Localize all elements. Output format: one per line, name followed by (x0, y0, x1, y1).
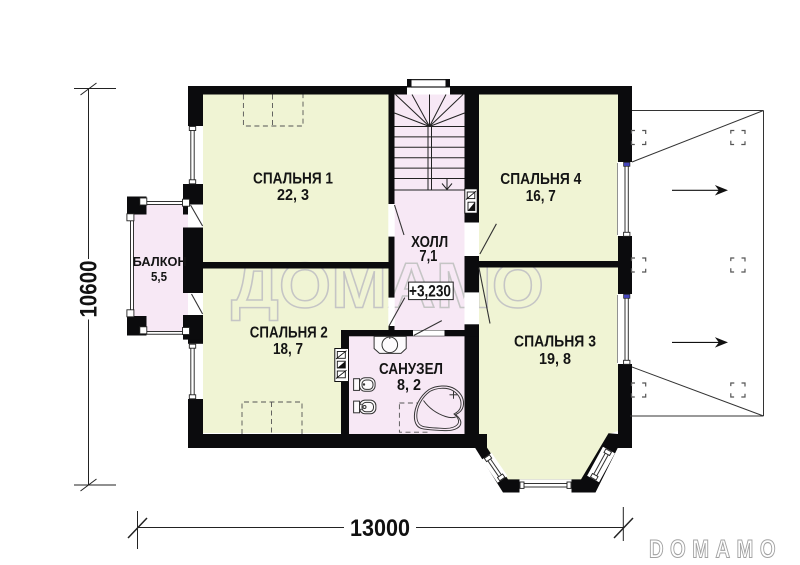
svg-text:БАЛКОН: БАЛКОН (133, 255, 187, 269)
svg-text:САНУЗЕЛ: САНУЗЕЛ (379, 361, 443, 378)
svg-text:8, 2: 8, 2 (397, 377, 421, 394)
svg-text:+3,230: +3,230 (409, 283, 451, 301)
svg-text:СПАЛЬНЯ 1: СПАЛЬНЯ 1 (253, 171, 333, 188)
svg-text:СПАЛЬНЯ 3: СПАЛЬНЯ 3 (514, 334, 596, 351)
svg-text:10600: 10600 (76, 261, 103, 318)
svg-text:DOMAMO: DOMAMO (649, 536, 782, 564)
svg-text:22, 3: 22, 3 (277, 187, 309, 204)
svg-text:18, 7: 18, 7 (273, 341, 303, 358)
svg-text:СПАЛЬНЯ 4: СПАЛЬНЯ 4 (500, 171, 581, 188)
svg-text:13000: 13000 (350, 515, 410, 542)
svg-text:16, 7: 16, 7 (526, 188, 556, 205)
svg-text:7,1: 7,1 (419, 248, 437, 265)
svg-text:ДОМАМО: ДОМАМО (231, 250, 544, 322)
svg-text:19, 8: 19, 8 (539, 351, 571, 368)
svg-text:5,5: 5,5 (151, 270, 167, 284)
svg-text:СПАЛЬНЯ 2: СПАЛЬНЯ 2 (250, 325, 328, 342)
